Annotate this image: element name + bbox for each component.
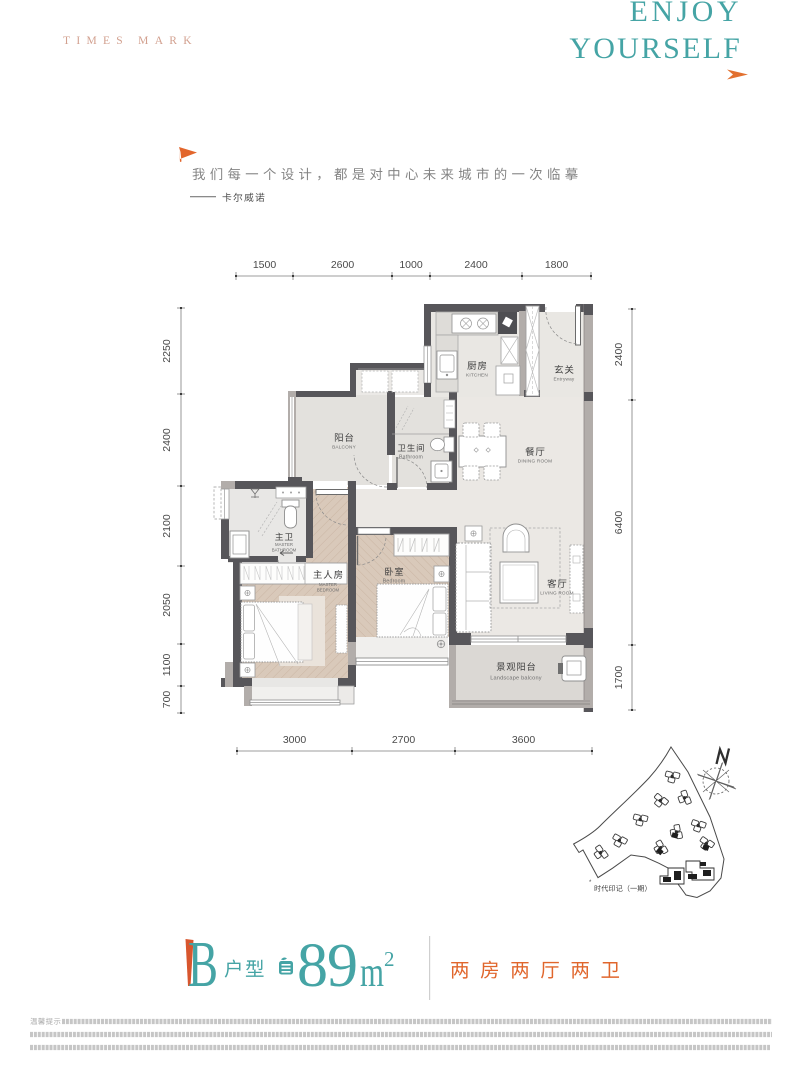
svg-text:2050: 2050 xyxy=(161,593,173,617)
svg-text:6400: 6400 xyxy=(613,511,625,535)
svg-text:1500: 1500 xyxy=(253,259,277,271)
svg-text:KITCHEN: KITCHEN xyxy=(466,373,488,378)
svg-text:m: m xyxy=(360,950,384,996)
svg-text:Entryway: Entryway xyxy=(554,377,575,382)
svg-text:B: B xyxy=(188,928,218,1001)
svg-text:1700: 1700 xyxy=(613,666,625,690)
svg-text:3600: 3600 xyxy=(512,734,536,746)
svg-text:2700: 2700 xyxy=(392,734,416,746)
svg-text:2250: 2250 xyxy=(161,339,173,363)
svg-text:2100: 2100 xyxy=(161,514,173,538)
svg-text:2400: 2400 xyxy=(161,428,173,452)
svg-text:2: 2 xyxy=(384,947,395,971)
svg-text:3000: 3000 xyxy=(283,734,307,746)
svg-text:YOURSELF: YOURSELF xyxy=(569,32,742,65)
svg-text:2600: 2600 xyxy=(331,259,355,271)
svg-text:2400: 2400 xyxy=(464,259,488,271)
svg-text:1100: 1100 xyxy=(161,654,173,677)
svg-text:MASTER: MASTER xyxy=(319,582,337,587)
svg-text:MASTER: MASTER xyxy=(275,542,293,547)
svg-text:1800: 1800 xyxy=(545,259,569,271)
svg-text:BEDROOM: BEDROOM xyxy=(317,588,340,593)
svg-text:TIMES MARK: TIMES MARK xyxy=(63,35,198,47)
svg-text:*: * xyxy=(589,880,592,886)
svg-text:LIVING ROOM: LIVING ROOM xyxy=(540,591,573,596)
svg-text:1000: 1000 xyxy=(399,259,423,271)
svg-text:Bedroom: Bedroom xyxy=(383,579,405,585)
svg-text:2400: 2400 xyxy=(613,343,625,367)
svg-text:BATHROOM: BATHROOM xyxy=(272,548,297,553)
svg-text:89: 89 xyxy=(297,932,357,1000)
svg-text:DINING ROOM: DINING ROOM xyxy=(518,459,553,464)
svg-text:Bathroom: Bathroom xyxy=(399,455,423,461)
svg-text:ENJOY: ENJOY xyxy=(630,0,743,28)
svg-text:BALCONY: BALCONY xyxy=(332,445,356,450)
svg-text:Landscape balcony: Landscape balcony xyxy=(490,676,542,682)
svg-text:700: 700 xyxy=(161,691,173,709)
